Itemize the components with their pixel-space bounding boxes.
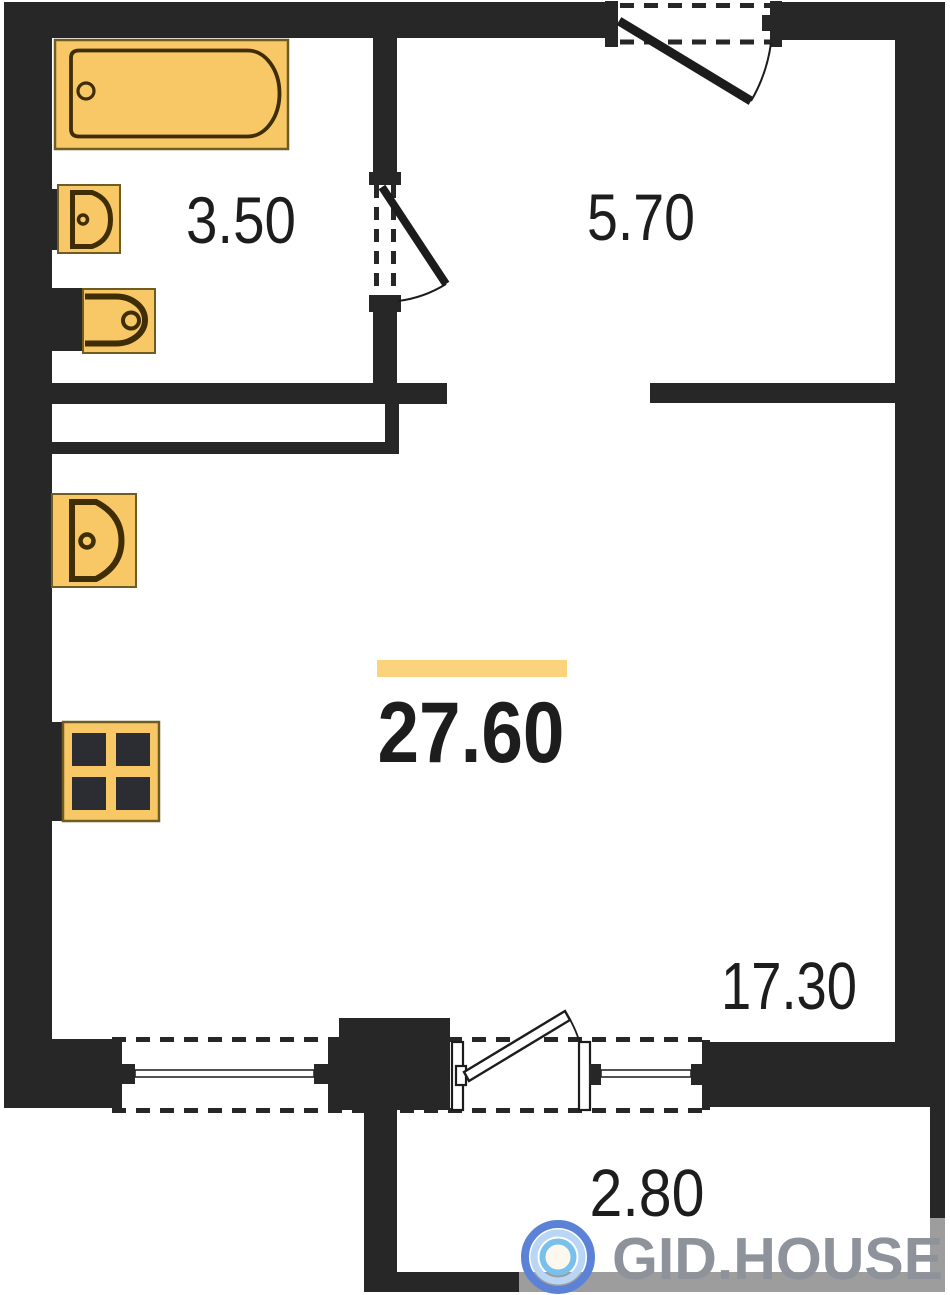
svg-text:27.60: 27.60 [378,685,565,781]
svg-text:5.70: 5.70 [587,180,695,254]
svg-text:17.30: 17.30 [721,949,857,1024]
svg-text:GID.HOUSE: GID.HOUSE [612,1226,943,1292]
svg-text:3.50: 3.50 [186,183,296,257]
